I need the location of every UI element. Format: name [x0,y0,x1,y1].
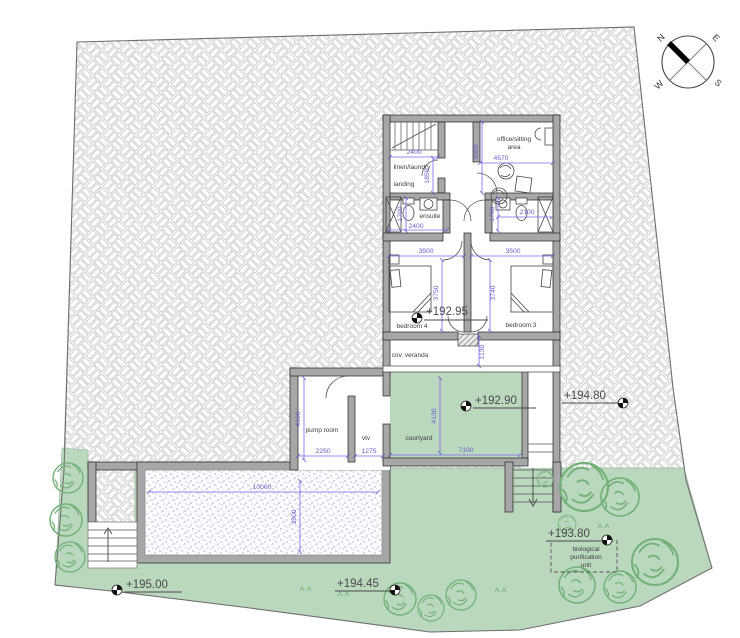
veranda-wall-right [478,332,560,340]
terrace-side-wall [88,462,96,522]
veranda-wall-left [383,332,458,340]
survey-marker-icon [390,585,400,595]
dim-stair-width: 2400 [406,149,421,156]
dim-ensuite-left-depth: 1700 [397,206,404,221]
courtyard-paving [390,372,522,462]
annex-partition [348,396,355,462]
bio-unit-label-line2: purification [570,554,602,561]
room-label-courtyard: courtyard [405,435,432,442]
wall-right [553,115,560,512]
dim-pool-width: 3500 [291,509,298,524]
dim-bedroom4-depth: 3750 [433,285,440,300]
annex-wall-top [290,368,390,376]
courtyard-wall-right [522,372,528,462]
elevation-value: +194.45 [337,578,379,590]
dim-ensuite-right-depth: 1700 [489,206,496,221]
bio-unit-label-line3: unit [581,562,592,569]
room-label-office-line2: area [507,144,520,151]
bio-unit-label-line1: biological [572,546,600,553]
veranda-edge [383,366,560,372]
site-plan: 10000 3500 [0,0,740,638]
survey-marker-icon [412,313,422,323]
wall-top [383,115,560,122]
elevation-value: +192.90 [475,395,517,407]
courtyard-wall-left [383,372,390,396]
room-label-pump-room: pump room [306,427,339,434]
elevation-value: +193.80 [548,528,590,540]
elevation-value: +192.95 [426,306,468,318]
north-needle [669,43,688,62]
stair-wall [438,122,445,158]
exterior-stairs-southwest [88,522,137,568]
veranda-door-threshold [458,334,478,346]
dim-bedroom4-width: 3500 [418,248,433,255]
dim-pump-depth: 4100 [295,411,302,426]
dim-pump-width: 2250 [315,448,330,455]
room-label-office-line1: office/sitting [497,136,532,143]
compass-east-label: E [710,32,721,43]
dim-bedroom3-depth: 3740 [490,285,497,300]
room-label-landing: landing [394,181,415,188]
room-label-bedroom4: bedroom 4 [396,323,427,330]
courtyard-wall-left2 [383,424,390,462]
dim-hall-width: 1275 [361,448,376,455]
compass-rose-icon: N E W S [652,32,723,91]
dim-office-depth: 3050 [473,144,480,159]
dim-courtyard-depth: 4130 [431,408,438,423]
site-plan-drawing: 10000 3500 [0,0,740,638]
linen-wall [438,178,445,193]
elevation-value: +195.00 [126,579,168,591]
room-label-vtv: vtv [362,435,371,442]
bedroom-top-wall-left [383,233,443,241]
survey-marker-icon [112,585,122,595]
dim-office-width: 4570 [493,155,508,162]
room-label-ensuite: ensuite [420,213,441,220]
compass-west-label: W [652,78,665,91]
survey-marker-icon [602,535,612,545]
bedroom-top-wall-right [490,233,560,241]
survey-marker-icon [618,398,628,408]
compass-north-label: N [655,32,667,44]
dim-bedroom3-width: 3500 [505,248,520,255]
bath-corridor-wall-left [443,200,450,233]
swimming-pool: 10000 3500 [137,462,390,563]
dim-ensuite-left-width: 2400 [408,223,423,230]
dim-veranda-depth: 1130 [479,344,486,359]
sink-icon-left [420,198,437,210]
compass-south-label: S [712,77,723,88]
dim-pool-length: 10000 [253,484,272,491]
dim-ensuite-right-width: 2100 [519,209,534,216]
dim-linen-depth: 1850 [424,168,431,183]
toilet-icon-left [403,198,414,221]
room-label-veranda: cov. veranda [392,352,429,359]
elevation-value: +194.80 [564,390,606,402]
room-label-bedroom3: bedroom 3 [505,322,536,329]
dim-courtyard-width: 7100 [458,447,473,454]
survey-marker-icon [461,401,471,411]
